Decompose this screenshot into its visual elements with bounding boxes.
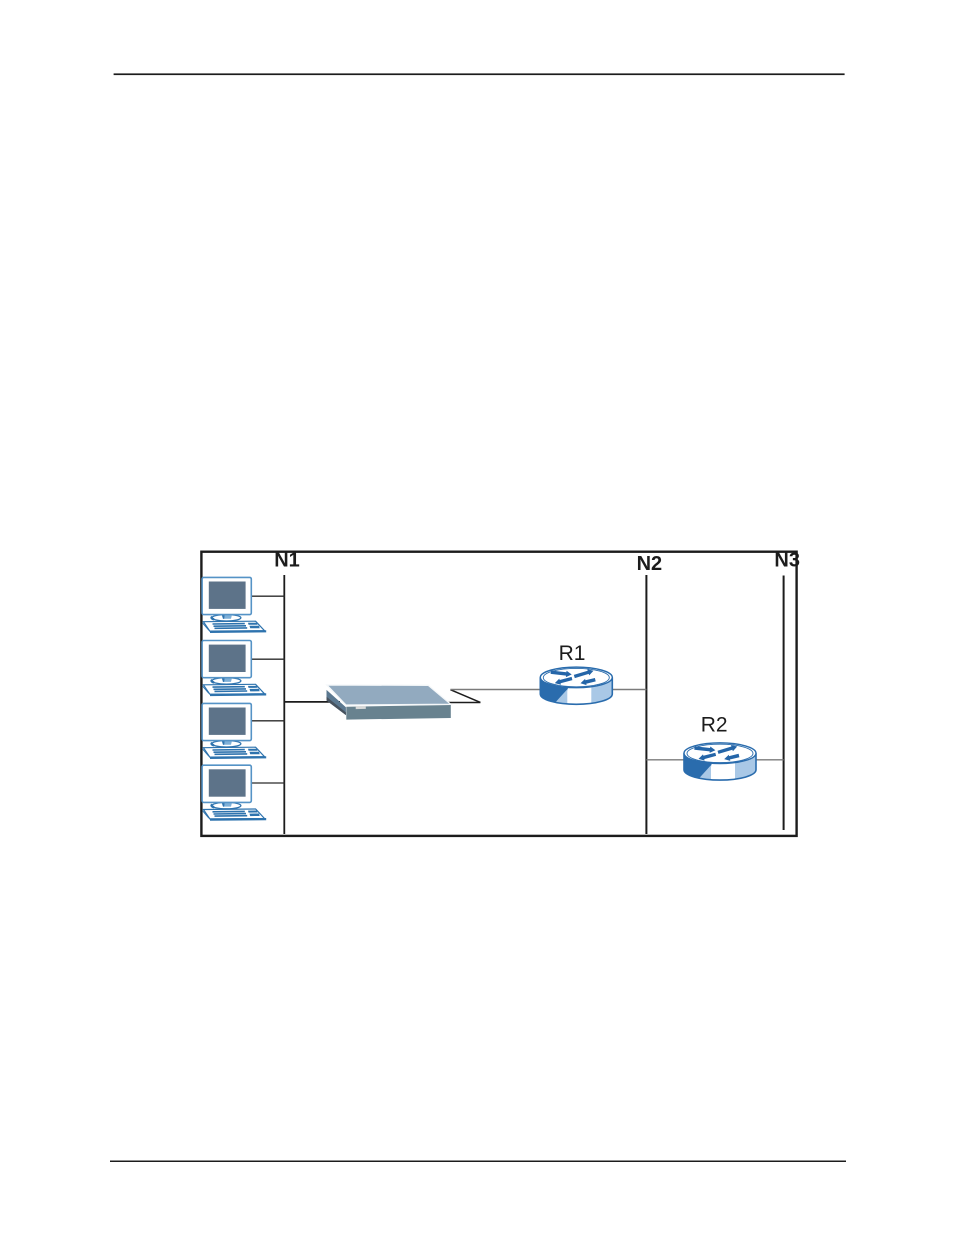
svg-text:N1: N1 bbox=[274, 550, 300, 572]
svg-text:N2: N2 bbox=[637, 553, 663, 575]
svg-text:R2: R2 bbox=[701, 714, 728, 737]
svg-text:N3: N3 bbox=[774, 549, 800, 571]
svg-text:R1: R1 bbox=[559, 642, 586, 665]
